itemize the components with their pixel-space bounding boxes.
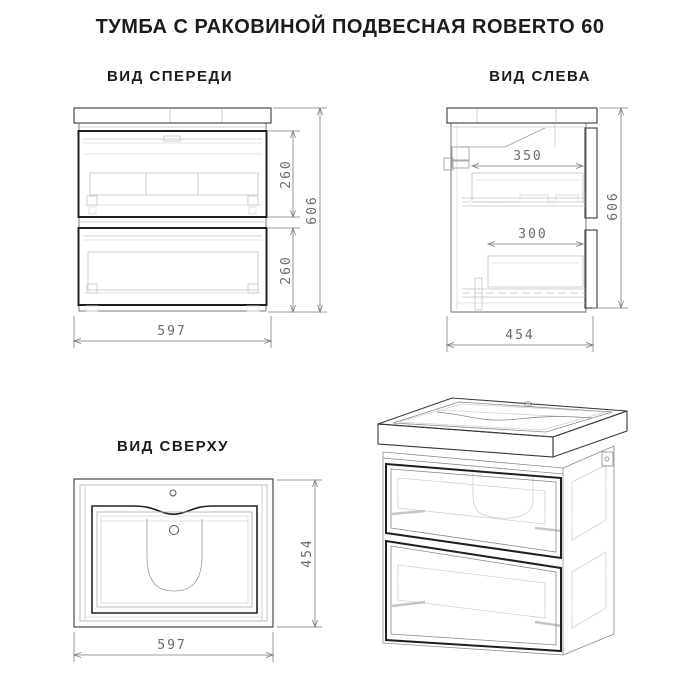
wall-bracket-detail xyxy=(602,452,613,466)
left-view-cabinet xyxy=(444,108,597,312)
dim-left-total-height: 606 xyxy=(606,191,621,220)
front-countertop xyxy=(74,108,271,123)
front-bottom-drawer xyxy=(79,228,267,305)
basin-outline xyxy=(92,506,257,613)
left-countertop xyxy=(447,108,597,123)
front-view-cabinet xyxy=(74,108,271,311)
dim-left-depth: 454 xyxy=(505,328,534,343)
top-view-label: ВИД СВЕРХУ xyxy=(63,438,283,455)
left-view-label: ВИД СЛЕВА xyxy=(430,68,650,85)
iso-bottom-drawer xyxy=(386,541,561,651)
technical-drawing-sheet: ТУМБА С РАКОВИНОЙ ПОДВЕСНАЯ ROBERTO 60 В… xyxy=(0,0,700,700)
iso-view-drawing xyxy=(355,380,680,680)
front-view-label: ВИД СПЕРЕДИ xyxy=(60,68,280,85)
dim-front-width: 597 xyxy=(157,324,186,339)
overflow-hole xyxy=(170,526,179,535)
dim-front-total-height: 606 xyxy=(305,195,320,224)
front-view-drawing: 260 260 606 597 xyxy=(30,95,350,365)
faucet-hole xyxy=(170,490,176,496)
dim-front-top-drawer-height: 260 xyxy=(279,159,294,188)
dim-left-bottom-drawer-depth: 300 xyxy=(518,227,547,242)
top-view-drawing: 454 597 xyxy=(40,460,340,700)
dim-front-bottom-drawer-height: 260 xyxy=(279,255,294,284)
left-view-drawing: 350 300 606 454 xyxy=(430,95,680,365)
dim-left-top-drawer-depth: 350 xyxy=(513,149,542,164)
top-view-sink xyxy=(74,479,273,627)
left-top-drawer-front-edge xyxy=(585,128,597,218)
iso-drawers xyxy=(386,464,561,651)
front-top-drawer xyxy=(79,131,267,217)
dim-top-depth: 454 xyxy=(300,538,315,567)
left-view-dimensions: 350 300 606 454 xyxy=(447,108,628,352)
dim-top-width: 597 xyxy=(157,638,186,653)
page-title: ТУМБА С РАКОВИНОЙ ПОДВЕСНАЯ ROBERTO 60 xyxy=(0,16,700,39)
left-bottom-drawer-front-edge xyxy=(585,230,597,308)
iso-countertop xyxy=(378,398,627,457)
